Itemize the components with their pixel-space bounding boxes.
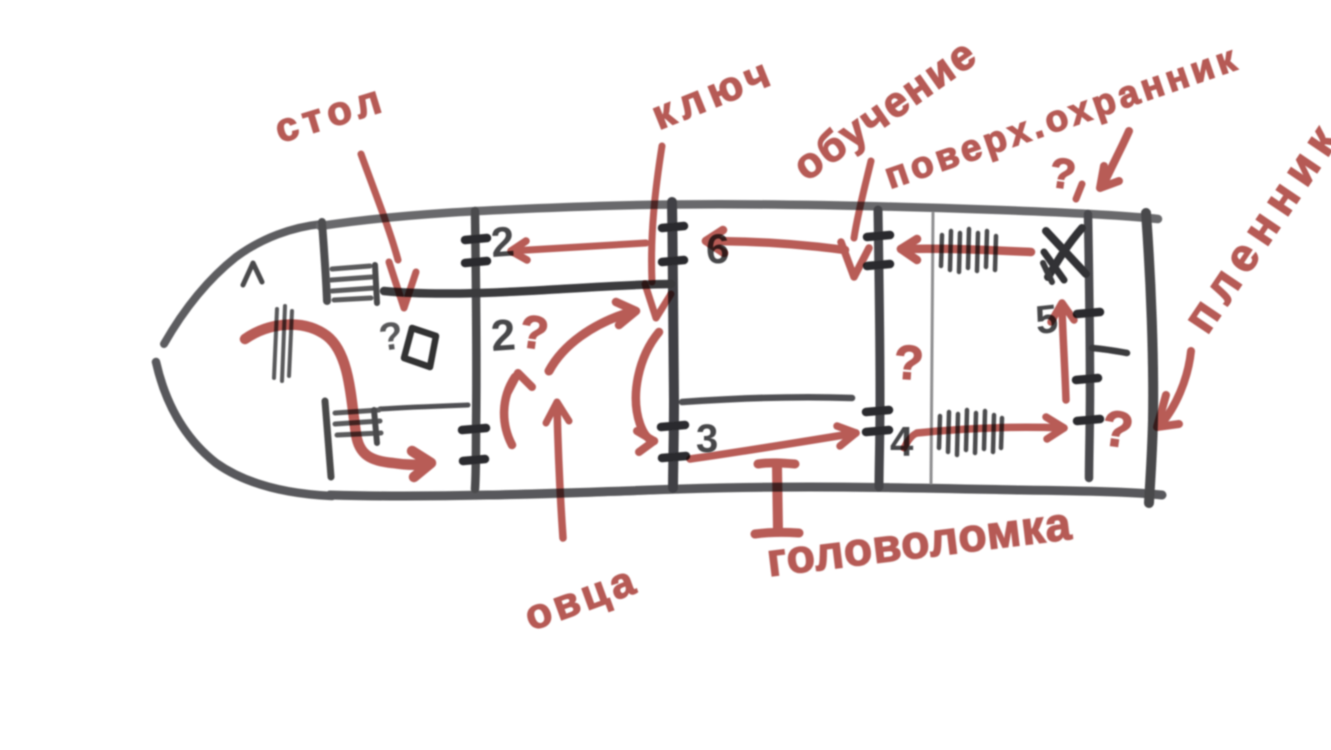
svg-text:овца: овца (518, 555, 644, 639)
svg-text:?: ? (376, 314, 406, 360)
svg-text:2: 2 (489, 310, 517, 361)
svg-text:?: ? (1098, 399, 1136, 459)
svg-text:пленник: пленник (1172, 110, 1331, 342)
svg-text:2: 2 (489, 217, 516, 266)
svg-text:ключ: ключ (645, 48, 781, 139)
svg-text:стол: стол (270, 76, 392, 151)
svg-text:?: ? (1047, 148, 1079, 198)
svg-text:?: ? (892, 336, 925, 391)
svg-text:?: ? (517, 304, 552, 359)
svg-text:головоломка: головоломка (764, 497, 1075, 586)
